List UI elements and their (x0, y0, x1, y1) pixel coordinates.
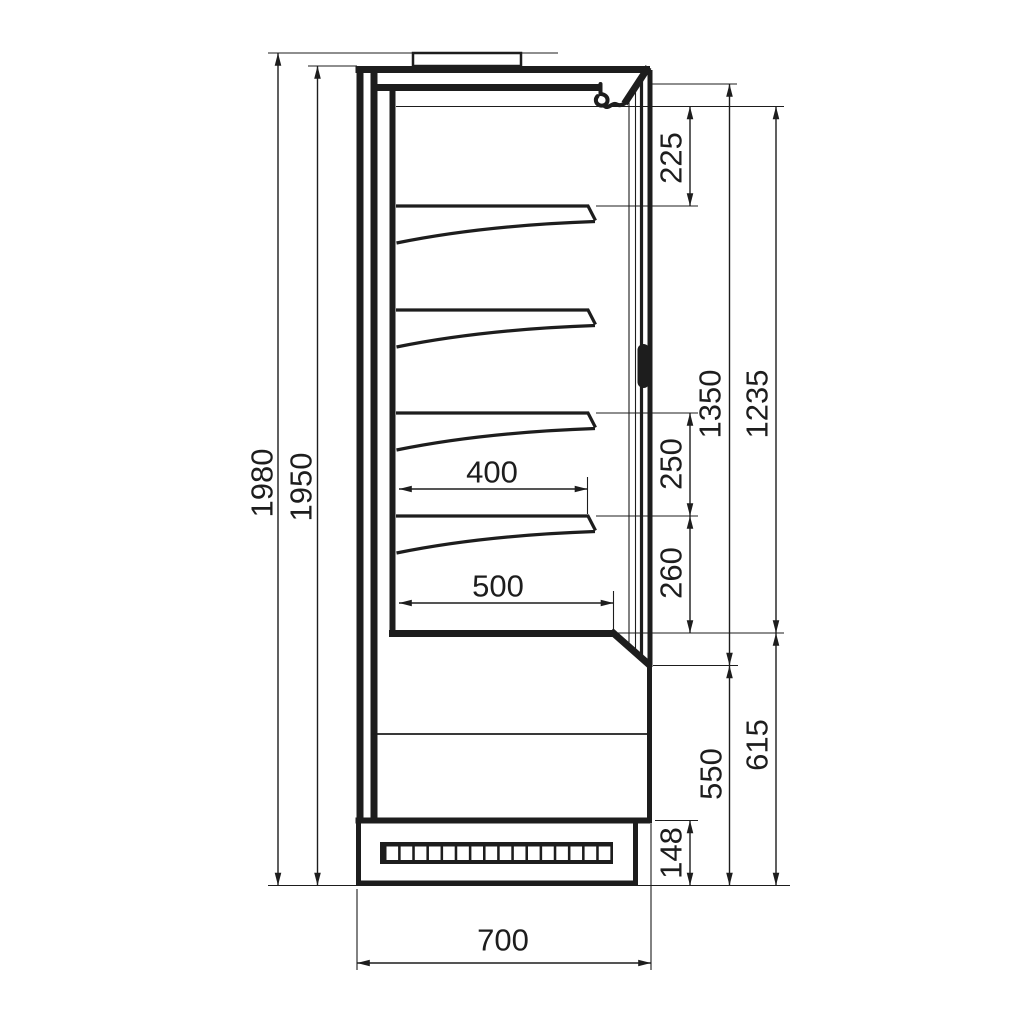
dim-label-shelf-depth-bottom: 500 (472, 569, 524, 604)
shelves (396, 206, 596, 553)
dimension-lines (278, 53, 776, 963)
glass-door (629, 70, 650, 667)
shelf-2 (396, 310, 596, 347)
grille-hole (570, 847, 582, 861)
dim-label-base-front-height: 550 (694, 748, 729, 800)
door-handle (638, 344, 650, 388)
shelf-3 (396, 413, 596, 450)
grille-hole (486, 847, 498, 861)
shelf-4 (396, 516, 596, 553)
dim-label-shelf-pitch-lower: 260 (654, 547, 689, 599)
grille-hole (528, 847, 540, 861)
dim-label-shelf-pitch-upper: 250 (654, 438, 689, 490)
grille-hole (457, 847, 469, 861)
grille-hole (500, 847, 512, 861)
floor-front-slant (611, 631, 650, 665)
grille-hole (387, 847, 399, 861)
shelf-1 (396, 206, 596, 243)
grille-hole (542, 847, 554, 861)
grille-hole (429, 847, 441, 861)
extension-lines (268, 53, 790, 970)
grille-hole (514, 847, 526, 861)
dim-label-top-gap: 225 (654, 132, 689, 184)
dim-label-opening-height: 1350 (693, 370, 728, 439)
dim-label-door-glass-height: 1235 (740, 370, 775, 439)
grille-hole (599, 847, 611, 861)
grille-hole (556, 847, 568, 861)
plinth (356, 821, 653, 884)
grille-hole (585, 847, 597, 861)
grille-hole (443, 847, 455, 861)
top-cap (413, 53, 521, 66)
cabinet-section-drawing: 1980 1950 225 250 260 148 1350 1235 550 … (0, 0, 1024, 1024)
grille-hole (471, 847, 483, 861)
technical-drawing-page: 1980 1950 225 250 260 148 1350 1235 550 … (0, 0, 1024, 1024)
dim-label-plinth-height: 148 (654, 827, 689, 879)
dim-label-overall-height: 1980 (245, 449, 280, 518)
dim-label-overall-depth: 700 (477, 923, 529, 958)
grille-hole (415, 847, 427, 861)
dim-label-body-height: 1950 (284, 453, 319, 522)
grille-hole (401, 847, 413, 861)
dim-label-shelf-depth-upper: 400 (466, 455, 518, 490)
dim-label-base-total-height: 615 (740, 719, 775, 771)
dimension-labels: 1980 1950 225 250 260 148 1350 1235 550 … (245, 132, 775, 957)
